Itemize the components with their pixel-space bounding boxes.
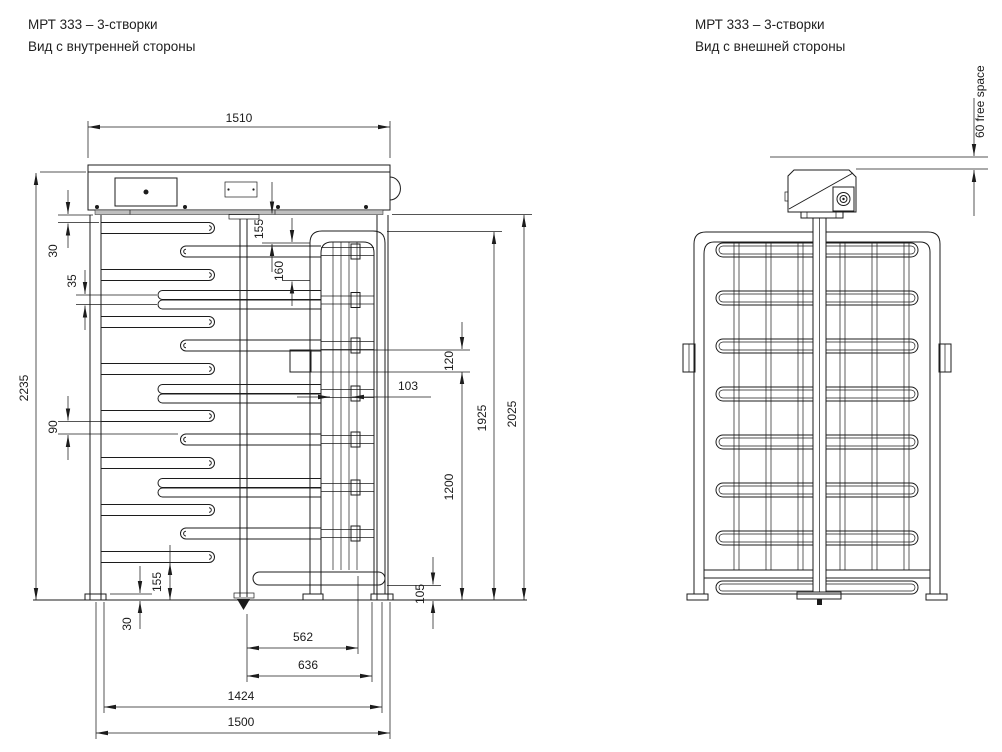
gate-rails [321,244,374,541]
dim-label-636: 636 [298,658,318,672]
arm-long [101,458,215,469]
left-drawing: 1510 2235 30 [17,111,532,739]
right-drawing: 60 free space [683,65,988,605]
bottom-rotor-rail [253,572,385,585]
rail-bracket [351,480,360,495]
post-base-plate [797,592,841,599]
dim-label-562: 562 [293,630,313,644]
dim-120: 120 [311,322,470,372]
housing-screw-4 [364,205,368,209]
arm-short [181,340,321,351]
dim-width-1510: 1510 [88,111,390,158]
arm-short [181,528,321,539]
frame-foot-left [687,594,708,600]
arm-long [101,411,215,422]
arm-long [101,270,215,281]
dim-pair-35: 35 [65,270,157,330]
rail-bracket [351,244,360,259]
head-box [785,170,856,218]
dim-label-105: 105 [413,584,427,604]
dim-155-bottom: 155 [150,545,170,600]
dim-label-35: 35 [65,274,79,288]
axis-pivot-marker [237,599,250,610]
arm-long [101,364,215,375]
axis-bottom-plate [234,593,254,598]
dim-pitch-90: 90 [46,396,178,460]
left-post-foot [85,594,106,600]
dim-1200: 1200 [442,372,462,600]
dim-label-30-top: 30 [46,244,60,258]
gate-foot-left [303,594,323,600]
dim-label-155-top: 155 [252,219,266,239]
dim-30-bottom: 30 [110,566,152,631]
gate-frame-inner [321,242,374,594]
gate-section [290,231,385,600]
housing-label-plate [225,182,257,197]
center-post [797,218,841,605]
dim-label-155-bottom: 155 [150,572,164,592]
dim-gap-30-top: 30 [46,190,99,258]
arm-short [181,434,321,445]
dim-label-30-bottom: 30 [120,617,134,631]
arm-long [101,505,215,516]
rail-bracket [351,386,360,401]
dim-height-2235: 2235 [17,172,86,600]
dim-155-top: 155 [252,182,310,272]
arm-long [101,317,215,328]
dim-160: 160 [272,218,310,306]
dim-label-103: 103 [398,379,418,393]
left-dimensions: 1510 2235 30 [17,111,532,739]
dim-1925: 1925 [387,232,502,601]
dim-105: 105 [387,557,441,629]
axis-top-bracket [229,215,259,220]
label-plate-dot-right [252,188,254,190]
dim-label-120: 120 [442,351,456,371]
arm-long [101,223,215,234]
housing-screw-2 [183,205,187,209]
rotor-axis [229,215,259,611]
rail-bracket [351,338,360,353]
label-plate-dot-left [227,188,229,190]
dim-free-space: 60 free space [770,65,988,216]
housing-screw-1 [95,205,99,209]
dim-1424: 1424 [104,602,382,713]
right-post-foot [371,594,393,600]
arm-short [181,246,321,257]
rail-bracket [351,293,360,308]
housing-end-cap [390,177,400,200]
dim-label-1925: 1925 [475,404,489,431]
rail-bracket [351,432,360,447]
dim-label-90: 90 [46,420,60,434]
housing-screw-3 [276,205,280,209]
dim-label-2235: 2235 [17,374,31,401]
post-base-pin [817,599,822,605]
frame-foot-right [926,594,947,600]
head-box-diagonal [789,173,853,209]
rotor-arms [101,223,385,586]
left-post [85,215,106,600]
dim-label-2025: 2025 [505,400,519,427]
dim-label-free-space: 60 free space [973,65,987,138]
technical-drawing-page: МРТ 333 – 3-створки Вид с внутренней сто… [0,0,1002,752]
drawing-canvas: 1510 2235 30 [0,0,1002,752]
lock-dot [842,198,844,200]
gate-handle-bracket [290,350,311,372]
dim-label-1200: 1200 [442,473,456,500]
rail-bracket [351,526,360,541]
control-box-dot [144,190,149,195]
arm-long [101,552,215,563]
housing-mount-plate [95,210,383,215]
turnstile-housing [88,165,400,215]
dim-label-1510: 1510 [226,111,253,125]
dim-label-1500: 1500 [228,715,255,729]
dim-label-1424: 1424 [228,689,255,703]
dim-label-160: 160 [272,261,286,281]
